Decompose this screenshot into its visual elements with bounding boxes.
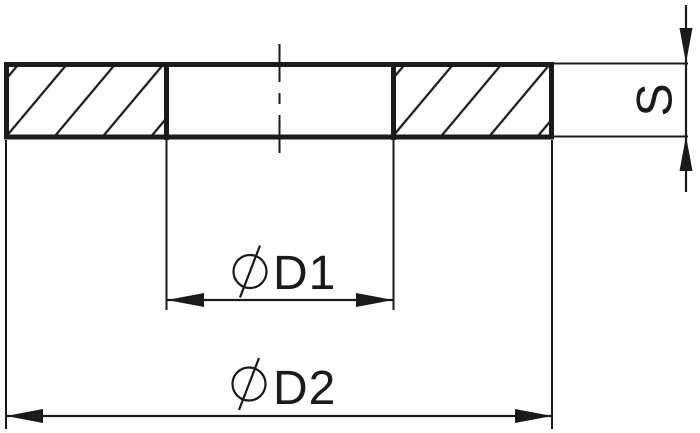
right-section-hatch — [396, 67, 549, 135]
d1-arrowhead-right-icon — [356, 293, 393, 307]
d2-label-text: D2 — [273, 362, 336, 415]
d1-dimension: D1 — [167, 140, 394, 310]
drawing-canvas: D1 D2 S — [0, 0, 700, 433]
d1-arrowhead-left-icon — [167, 293, 204, 307]
d1-label: D1 — [234, 246, 337, 301]
d2-arrowhead-left-icon — [6, 409, 43, 423]
diameter-icon — [233, 358, 266, 410]
left-section-hatch — [9, 67, 164, 135]
d2-arrowhead-right-icon — [515, 409, 552, 423]
s-dimension: S — [554, 5, 693, 192]
s-arrowhead-top-icon — [680, 28, 693, 63]
s-arrowhead-bottom-icon — [680, 136, 693, 171]
d2-label: D2 — [233, 358, 337, 415]
technical-drawing-washer: D1 D2 S — [0, 0, 700, 433]
s-label-text: S — [627, 83, 683, 116]
d1-label-text: D1 — [273, 247, 336, 300]
diameter-icon — [234, 246, 267, 298]
washer-cross-section — [7, 44, 552, 159]
